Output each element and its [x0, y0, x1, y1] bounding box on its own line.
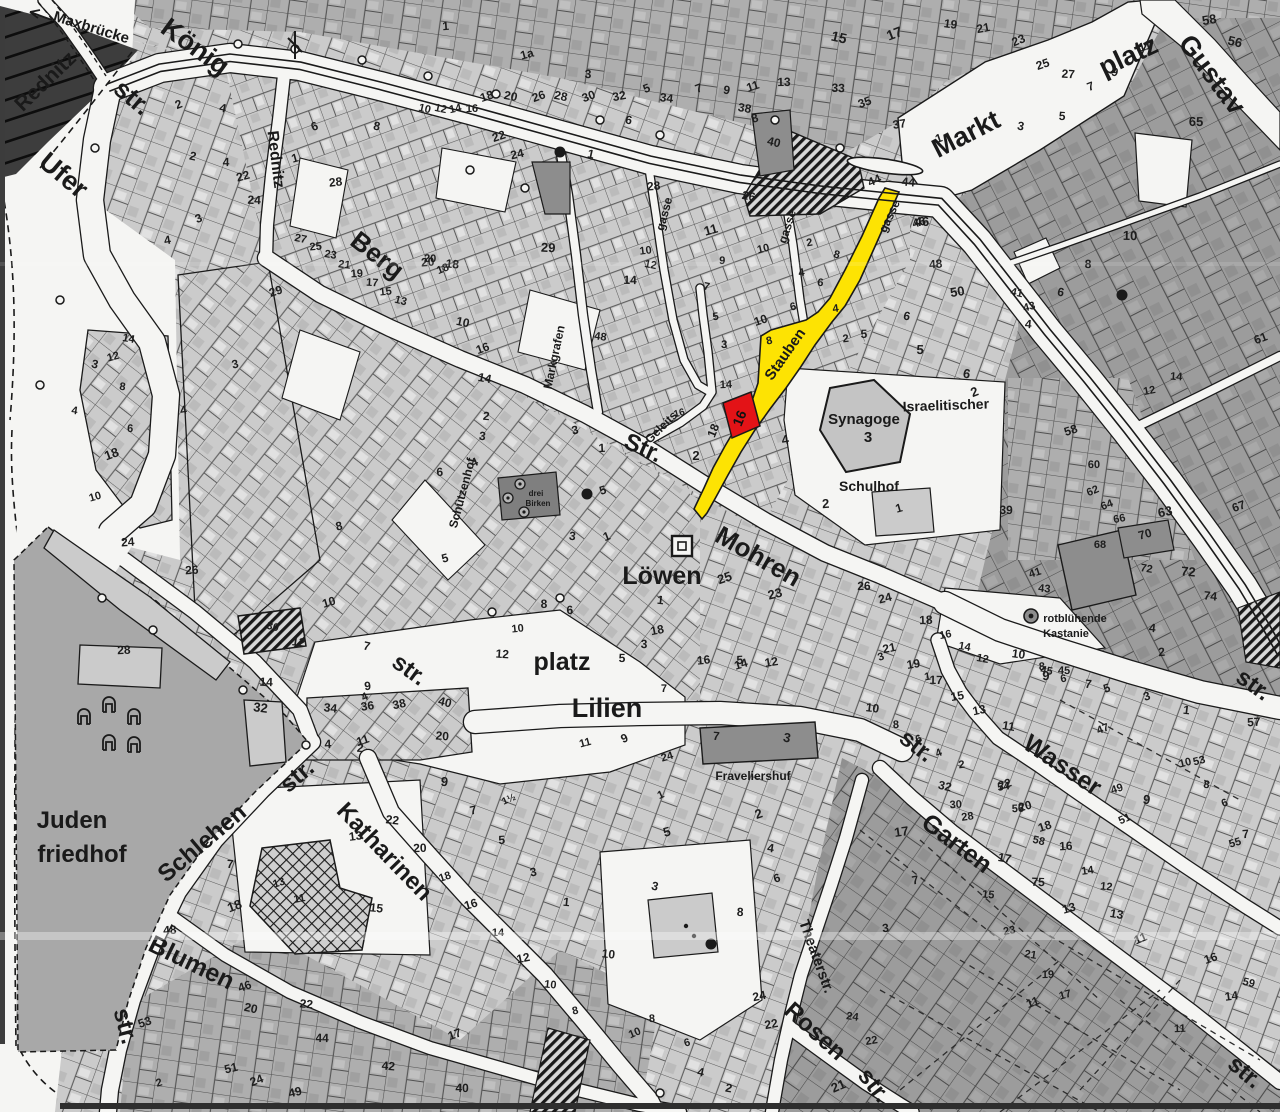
svg-text:10: 10 [511, 622, 524, 635]
svg-text:8: 8 [1038, 661, 1045, 673]
svg-text:5: 5 [860, 327, 867, 341]
svg-text:20: 20 [413, 841, 427, 855]
svg-text:friedhof: friedhof [37, 841, 127, 868]
svg-text:16: 16 [1059, 839, 1073, 854]
svg-text:22: 22 [865, 1034, 879, 1048]
svg-text:44: 44 [315, 1031, 329, 1045]
svg-text:3: 3 [641, 637, 648, 651]
svg-text:6: 6 [127, 423, 134, 435]
svg-text:Birken: Birken [526, 499, 551, 508]
svg-text:rotblühende: rotblühende [1043, 613, 1107, 625]
svg-text:12: 12 [975, 652, 989, 666]
svg-text:10: 10 [601, 946, 616, 961]
svg-text:Juden: Juden [37, 807, 108, 834]
svg-text:37: 37 [892, 116, 908, 132]
svg-text:16: 16 [466, 103, 478, 115]
svg-text:72: 72 [1181, 563, 1197, 579]
svg-text:2: 2 [356, 741, 364, 755]
svg-text:16: 16 [696, 652, 711, 667]
svg-text:11: 11 [293, 892, 307, 906]
svg-text:3: 3 [864, 429, 872, 446]
svg-text:19: 19 [906, 656, 922, 672]
svg-text:43: 43 [1038, 582, 1051, 595]
svg-text:66: 66 [1112, 512, 1126, 526]
svg-text:38: 38 [737, 100, 753, 116]
svg-text:39: 39 [999, 503, 1013, 517]
svg-text:4: 4 [324, 737, 331, 751]
svg-text:28: 28 [328, 174, 343, 189]
svg-text:Kastanie: Kastanie [1043, 628, 1089, 640]
svg-text:28: 28 [117, 643, 131, 657]
svg-text:15: 15 [379, 285, 392, 298]
svg-text:3: 3 [585, 67, 592, 81]
svg-text:50: 50 [949, 283, 966, 300]
svg-text:14: 14 [259, 675, 273, 689]
svg-text:32: 32 [252, 699, 268, 716]
svg-text:6: 6 [566, 603, 573, 617]
svg-text:34: 34 [323, 700, 338, 715]
svg-text:15: 15 [369, 900, 384, 915]
svg-text:11: 11 [1001, 718, 1016, 734]
svg-text:13: 13 [1109, 906, 1125, 922]
svg-text:28: 28 [961, 810, 975, 824]
svg-text:Löwen: Löwen [622, 562, 701, 590]
svg-text:11: 11 [1174, 1023, 1186, 1035]
svg-text:26: 26 [185, 563, 199, 578]
svg-text:10: 10 [544, 978, 557, 991]
svg-text:platz: platz [534, 648, 591, 676]
svg-text:Lilien: Lilien [572, 693, 643, 723]
svg-text:58: 58 [1201, 11, 1218, 28]
svg-text:8: 8 [649, 1013, 656, 1025]
svg-text:1: 1 [598, 441, 605, 455]
svg-text:14: 14 [1224, 988, 1239, 1004]
svg-text:41: 41 [1009, 286, 1023, 300]
svg-text:30: 30 [949, 799, 962, 812]
svg-text:22: 22 [299, 996, 314, 1011]
svg-text:17: 17 [893, 823, 909, 840]
svg-text:17: 17 [929, 673, 943, 687]
svg-text:14: 14 [1170, 371, 1184, 384]
svg-text:8: 8 [893, 719, 900, 731]
svg-text:48: 48 [594, 330, 608, 344]
svg-text:12: 12 [1100, 880, 1113, 893]
svg-text:44: 44 [901, 174, 916, 189]
svg-text:21: 21 [1023, 948, 1037, 962]
svg-text:28: 28 [646, 178, 661, 193]
svg-text:5: 5 [498, 833, 506, 847]
svg-text:Schulhof: Schulhof [839, 478, 899, 494]
svg-text:15: 15 [982, 889, 995, 902]
svg-text:10: 10 [639, 244, 653, 257]
svg-text:6: 6 [436, 465, 444, 479]
svg-text:65: 65 [1189, 114, 1204, 129]
svg-text:2: 2 [822, 496, 830, 511]
svg-text:5: 5 [1059, 109, 1067, 123]
svg-text:9: 9 [440, 774, 449, 790]
svg-text:12: 12 [764, 654, 780, 670]
svg-text:7: 7 [227, 857, 235, 871]
svg-text:19: 19 [1042, 969, 1054, 981]
svg-text:15: 15 [950, 688, 966, 704]
svg-text:40: 40 [455, 1081, 469, 1095]
svg-text:10: 10 [1123, 228, 1138, 243]
svg-text:2: 2 [842, 333, 849, 346]
svg-text:63: 63 [1156, 503, 1173, 521]
svg-text:5: 5 [736, 653, 743, 667]
svg-text:29: 29 [541, 240, 556, 256]
svg-text:7: 7 [661, 683, 667, 695]
svg-text:12: 12 [433, 102, 447, 116]
svg-text:42: 42 [381, 1058, 396, 1073]
svg-text:75: 75 [1031, 875, 1045, 889]
svg-text:12: 12 [291, 634, 306, 650]
svg-text:22: 22 [385, 812, 400, 827]
svg-text:27: 27 [293, 232, 307, 246]
svg-text:13: 13 [348, 828, 363, 844]
svg-text:20: 20 [435, 729, 450, 744]
svg-text:5: 5 [916, 342, 924, 357]
svg-text:25: 25 [309, 241, 322, 254]
svg-text:24: 24 [247, 193, 261, 207]
svg-text:12: 12 [1142, 384, 1156, 398]
svg-text:34: 34 [659, 90, 674, 106]
svg-text:33: 33 [831, 81, 845, 95]
svg-text:8: 8 [541, 597, 548, 611]
svg-text:23: 23 [323, 248, 337, 262]
svg-text:drei: drei [529, 489, 544, 498]
svg-text:19: 19 [350, 268, 363, 281]
svg-text:17: 17 [366, 277, 379, 290]
svg-text:36: 36 [360, 698, 375, 714]
svg-text:10: 10 [1011, 646, 1026, 662]
svg-text:72: 72 [1139, 562, 1153, 576]
svg-text:27: 27 [1061, 67, 1075, 82]
svg-text:24: 24 [121, 535, 136, 550]
svg-text:Fraveliershuf: Fraveliershuf [715, 769, 791, 783]
svg-text:60: 60 [1088, 459, 1100, 471]
svg-text:14: 14 [623, 273, 637, 287]
svg-text:26: 26 [857, 579, 871, 593]
svg-text:68: 68 [1094, 539, 1106, 551]
svg-text:8: 8 [737, 905, 745, 919]
svg-text:57: 57 [1247, 715, 1261, 730]
svg-text:10: 10 [865, 700, 880, 716]
svg-text:13: 13 [777, 75, 791, 89]
svg-text:1: 1 [442, 19, 450, 33]
svg-text:12: 12 [495, 647, 510, 662]
svg-text:19: 19 [943, 16, 958, 32]
svg-text:16: 16 [938, 628, 952, 642]
svg-text:Synagoge: Synagoge [828, 411, 900, 428]
svg-text:4: 4 [223, 155, 230, 169]
svg-text:14: 14 [720, 379, 734, 391]
svg-text:2: 2 [692, 448, 699, 463]
svg-text:17: 17 [997, 850, 1013, 866]
svg-text:5: 5 [619, 651, 626, 665]
svg-text:18: 18 [919, 613, 933, 627]
svg-text:74: 74 [1203, 588, 1218, 603]
svg-text:3: 3 [721, 339, 728, 351]
